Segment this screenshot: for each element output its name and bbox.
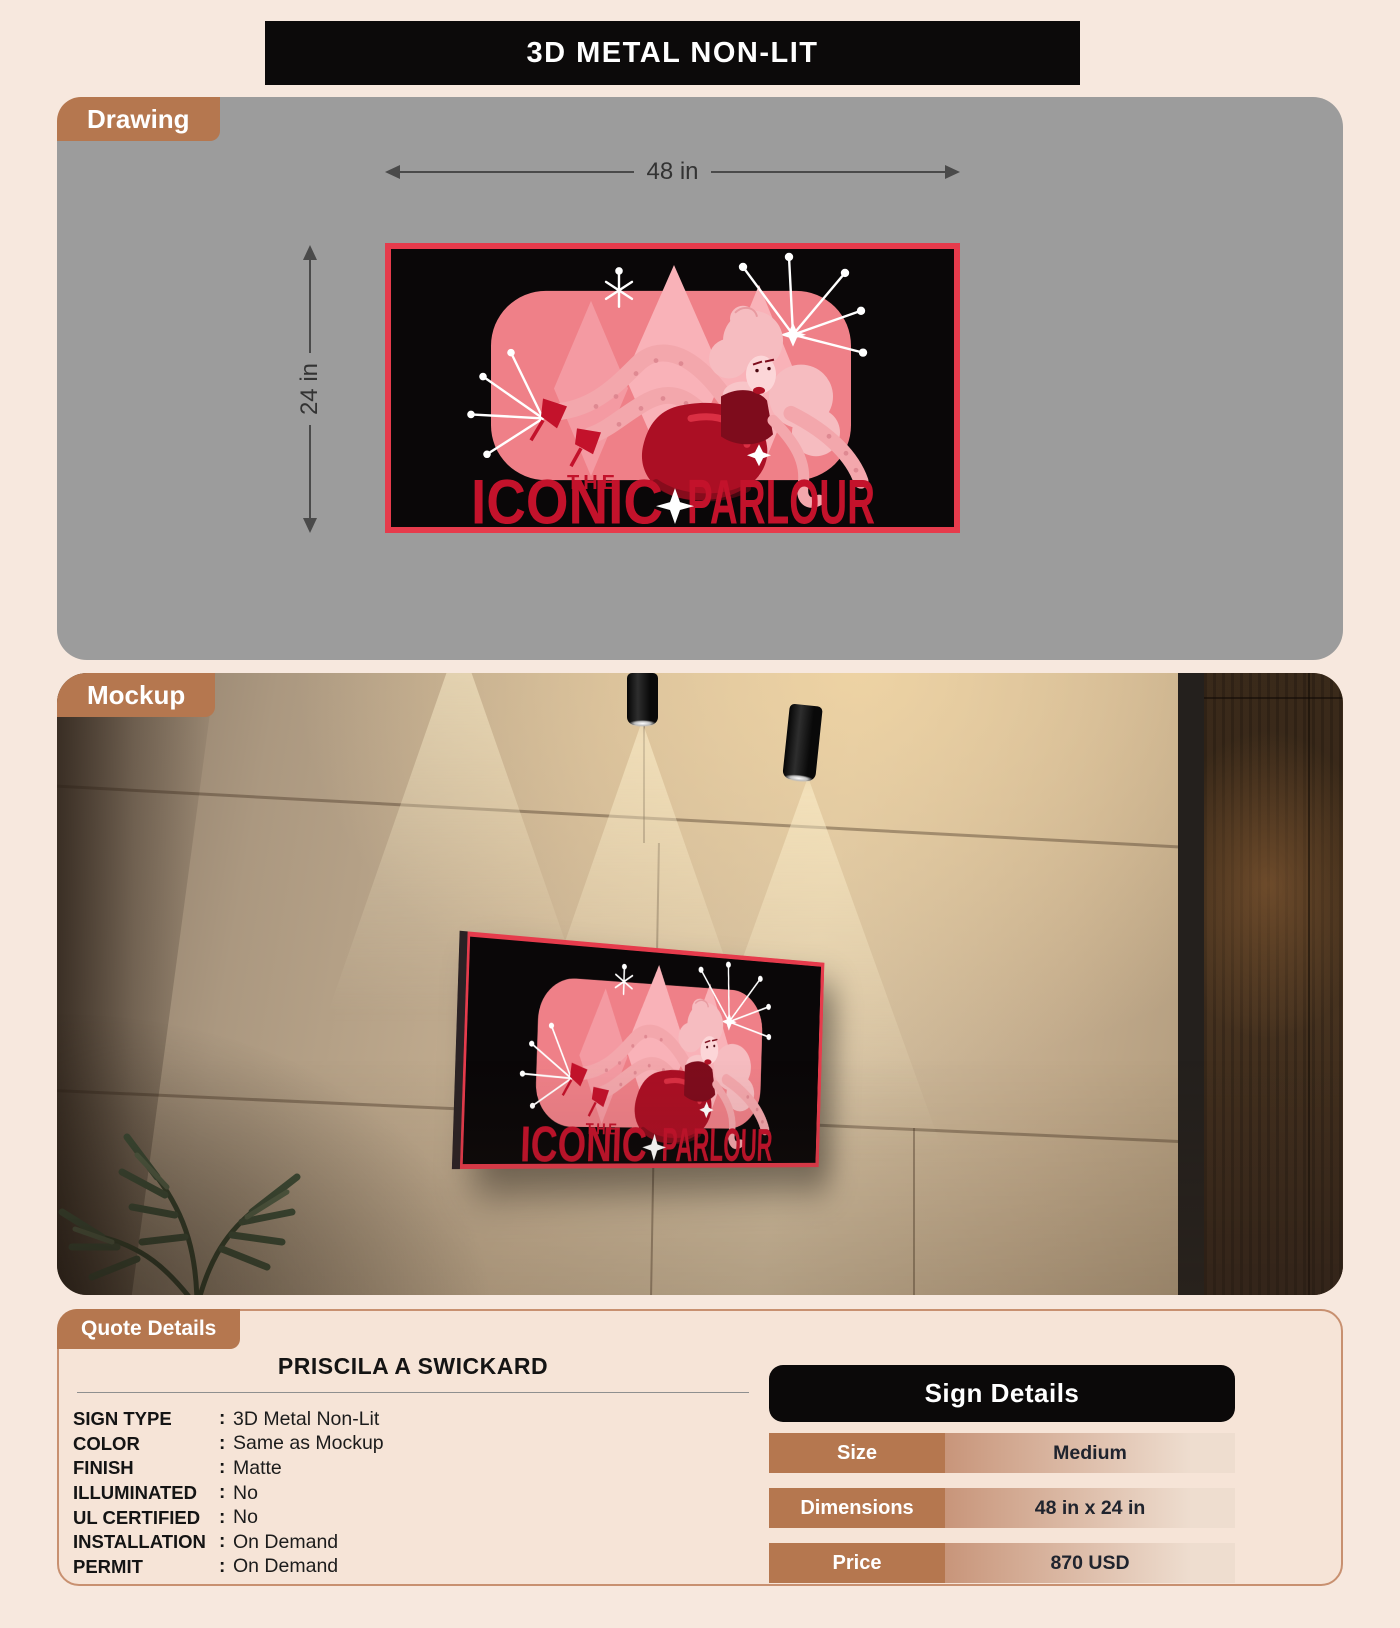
wood-panel: [1204, 673, 1343, 1295]
sign-details-row-price: Price 870 USD: [769, 1543, 1235, 1583]
quote-details-tab-label: Quote Details: [81, 1317, 216, 1341]
quote-sheet-page: { "banner": { "title": "3D METAL NON-LIT…: [0, 0, 1400, 1628]
divider: [77, 1392, 749, 1393]
arrow-down-icon: [303, 518, 317, 533]
width-dimension: 48 in: [385, 160, 960, 184]
spotlight-fixture: [627, 673, 658, 725]
mockup-tab: Mockup: [57, 673, 215, 717]
quote-details-tab: Quote Details: [57, 1309, 240, 1349]
drawing-tab-label: Drawing: [87, 104, 190, 135]
spec-row-ul-certified: UL CERTIFIED : No: [73, 1505, 733, 1530]
drawing-tab: Drawing: [57, 97, 220, 141]
height-dimension: 24 in: [298, 245, 322, 533]
spec-row-illuminated: ILLUMINATED : No: [73, 1481, 733, 1506]
spec-row-finish: FINISH : Matte: [73, 1456, 733, 1481]
height-dimension-label: 24 in: [296, 353, 324, 425]
customer-name: PRISCILA A SWICKARD: [79, 1353, 747, 1380]
sign-drawing: [385, 243, 960, 533]
mockup-tab-label: Mockup: [87, 680, 185, 711]
sign-artwork: [391, 249, 954, 527]
sign-type-banner: 3D METAL NON-LIT: [265, 21, 1080, 85]
sign-artwork: [463, 937, 821, 1164]
sign-type-title: 3D METAL NON-LIT: [527, 37, 819, 70]
drawing-panel: Drawing 48 in 24 in: [57, 97, 1343, 660]
spec-row-sign-type: SIGN TYPE : 3D Metal Non-Lit: [73, 1407, 733, 1432]
mockup-panel: Mockup: [57, 673, 1343, 1295]
sign-mockup: [458, 931, 824, 1169]
sign-details-header: Sign Details: [769, 1365, 1235, 1422]
sign-details-table: Sign Details Size Medium Dimensions 48 i…: [769, 1365, 1235, 1598]
spec-row-installation: INSTALLATION : On Demand: [73, 1530, 733, 1555]
arrow-up-icon: [303, 245, 317, 260]
spec-row-permit: PERMIT : On Demand: [73, 1555, 733, 1580]
sign-details-title: Sign Details: [925, 1378, 1080, 1409]
arrow-right-icon: [945, 165, 960, 179]
wall-gap: [1178, 673, 1204, 1295]
sign-details-row-size: Size Medium: [769, 1433, 1235, 1473]
width-dimension-label: 48 in: [634, 158, 710, 186]
plant: [57, 1117, 407, 1295]
spotlight-fixture: [782, 703, 823, 781]
sign-details-row-dimensions: Dimensions 48 in x 24 in: [769, 1488, 1235, 1528]
quote-details-panel: Quote Details PRISCILA A SWICKARD SIGN T…: [57, 1309, 1343, 1586]
spec-row-color: COLOR : Same as Mockup: [73, 1432, 733, 1457]
arrow-left-icon: [385, 165, 400, 179]
spec-list: SIGN TYPE : 3D Metal Non-Lit COLOR : Sam…: [73, 1407, 733, 1579]
